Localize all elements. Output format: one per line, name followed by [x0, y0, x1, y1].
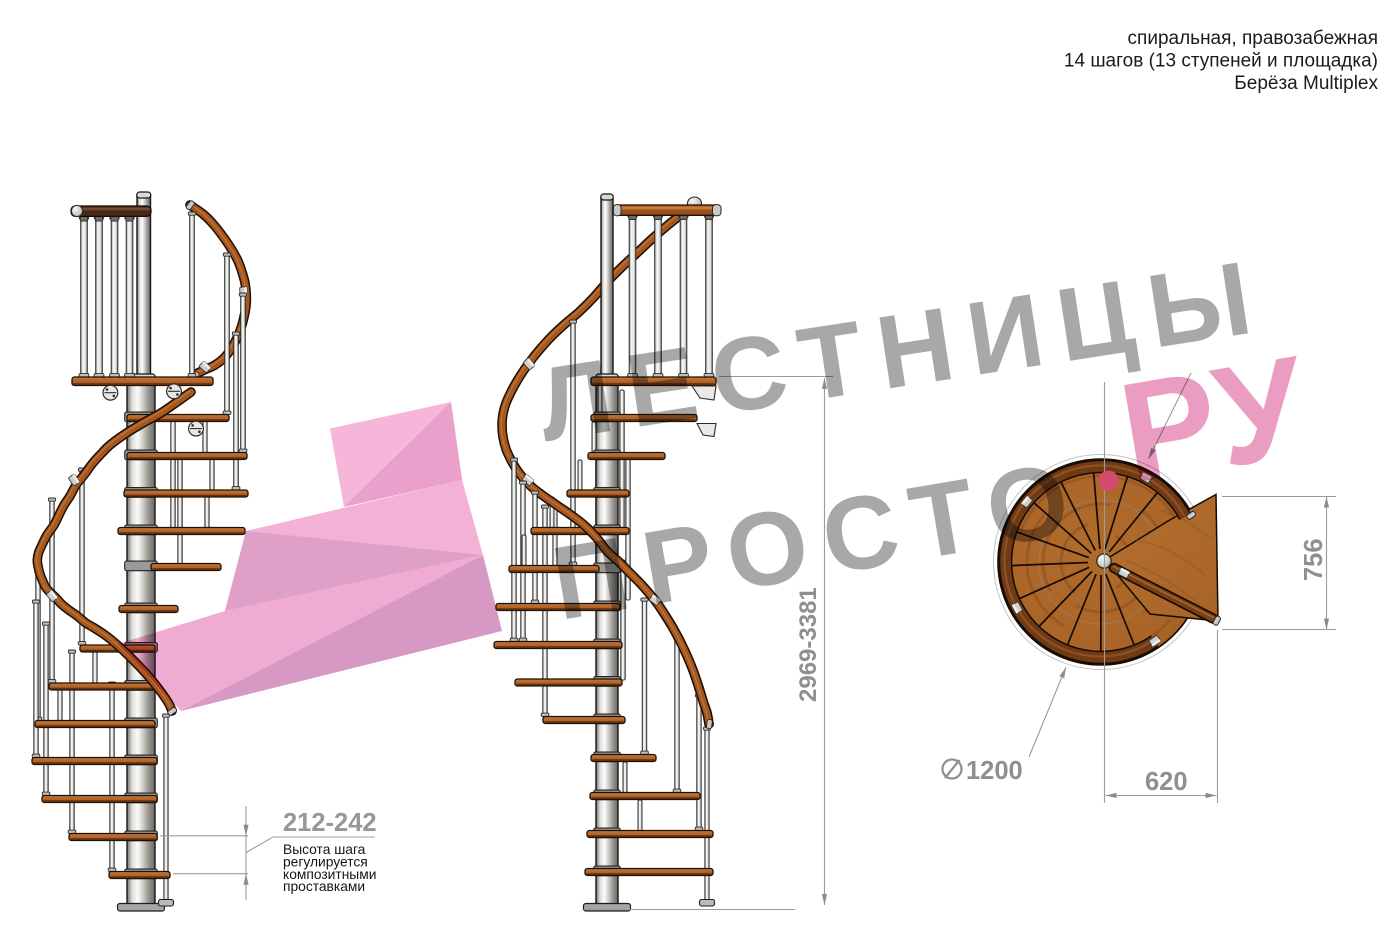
svg-text:14 шагов (13 ступеней и площад: 14 шагов (13 ступеней и площадка) — [1064, 51, 1378, 72]
svg-text:Высота шагарегулируетсякомпози: Высота шагарегулируетсякомпозитнымипрост… — [283, 842, 376, 894]
svg-text:2969-3381: 2969-3381 — [795, 587, 822, 702]
svg-text:620: 620 — [1145, 768, 1188, 796]
svg-text:212-242: 212-242 — [283, 809, 377, 837]
svg-text:РУ: РУ — [1110, 326, 1319, 514]
svg-text:спиральная, правозабежная: спиральная, правозабежная — [1128, 28, 1378, 49]
svg-text:1200: 1200 — [966, 757, 1023, 785]
svg-text:Берёза Multiplex: Берёза Multiplex — [1234, 73, 1378, 94]
svg-text:756: 756 — [1300, 538, 1328, 581]
